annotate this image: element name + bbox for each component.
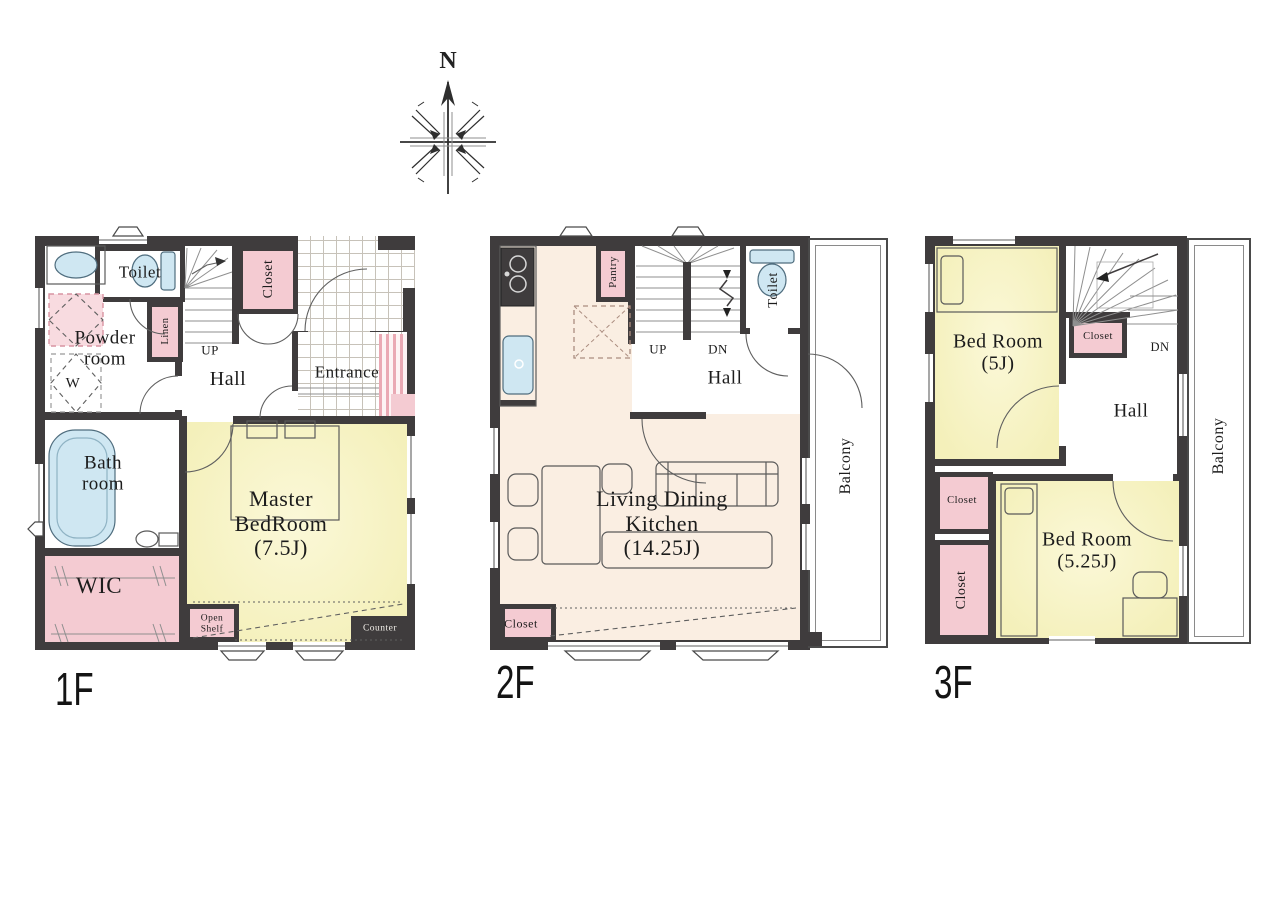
label-closet-2f: Closet — [504, 617, 538, 630]
door-arcs-2f — [560, 306, 862, 483]
floor-label-1f: 1F — [55, 662, 94, 716]
label-bedroom2: Bed Room (5.25J) — [1042, 529, 1132, 574]
label-counter: Counter — [363, 624, 397, 635]
label-dn-3f: DN — [1150, 340, 1169, 354]
furniture-3f — [937, 248, 1177, 636]
label-closet-3f-upper: Closet — [1083, 331, 1113, 343]
label-washer: W — [66, 376, 81, 393]
label-open-shelf: Open Shelf — [201, 613, 224, 634]
label-wic: WIC — [76, 573, 122, 599]
floor-label-2f: 2F — [496, 655, 535, 709]
label-up-1f: UP — [201, 344, 219, 359]
label-up-2f: UP — [649, 343, 667, 358]
label-hall-1f: Hall — [210, 368, 246, 390]
label-entrance: Entrance — [315, 362, 379, 381]
stairs-2f — [636, 246, 740, 340]
label-closet-1f: Closet — [261, 260, 277, 299]
label-toilet-1f: Toilet — [119, 262, 161, 281]
label-powder-room: Powder room — [74, 328, 135, 371]
compass-north-label: N — [439, 48, 456, 75]
overhang-lines-2f — [550, 608, 796, 636]
label-ldk: Living Dining Kitchen (14.25J) — [596, 487, 728, 561]
label-hall-3f: Hall — [1114, 400, 1149, 421]
label-bedroom1: Bed Room (5J) — [953, 331, 1043, 376]
label-hall-2f: Hall — [708, 367, 743, 388]
floor3-linework — [925, 236, 1255, 646]
label-toilet-2f: Toilet — [766, 272, 782, 307]
label-linen: Linen — [160, 318, 172, 345]
label-pantry: Pantry — [607, 256, 619, 288]
compass-rose: N — [398, 48, 498, 198]
label-dn-2f: DN — [708, 343, 728, 358]
floor-label-3f: 3F — [934, 655, 973, 709]
label-closet-3f-mid: Closet — [947, 495, 977, 507]
label-bath-room: Bath room — [82, 453, 124, 496]
floor-plan-3f: Bed Room (5J) Closet DN Hall Closet Clos… — [925, 236, 1255, 646]
label-master-bedroom: Master BedRoom (7.5J) — [235, 487, 328, 561]
label-closet-3f-lower: Closet — [954, 571, 970, 610]
floor-plan-2f: Pantry UP DN Toilet Hall Living Dining K… — [490, 236, 890, 651]
floor2-linework — [490, 236, 890, 651]
stairs-3f — [1073, 246, 1178, 326]
label-balcony-3f: Balcony — [1210, 418, 1228, 475]
stairs-1f — [185, 248, 232, 343]
label-balcony-2f: Balcony — [837, 438, 855, 495]
compass-icon — [398, 78, 498, 198]
floor-plan-1f: Toilet Powder room W Linen UP Hall Close… — [35, 236, 418, 651]
